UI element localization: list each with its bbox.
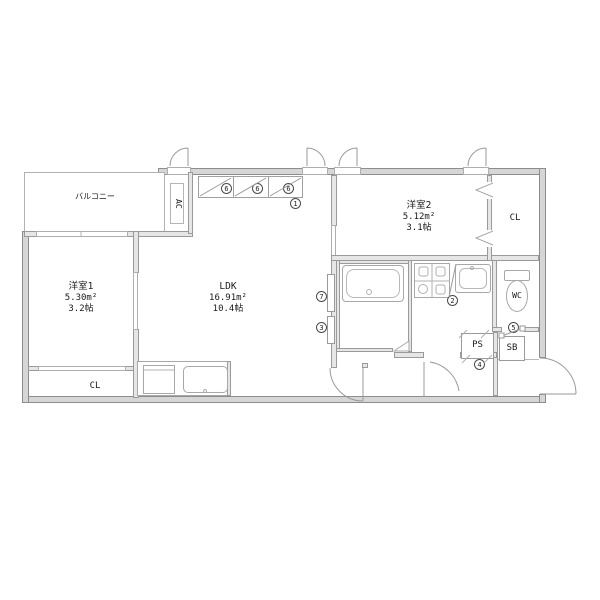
vanity-faucet bbox=[471, 267, 474, 270]
cl2-folding-door bbox=[476, 231, 493, 245]
washroom-divider-line bbox=[449, 264, 456, 297]
storage-hatch-line bbox=[270, 178, 301, 196]
door-swing-top-2 bbox=[307, 148, 325, 166]
bathtub-drain bbox=[367, 290, 372, 295]
entrance-door-swing bbox=[540, 358, 576, 394]
washer-pan-detail bbox=[436, 285, 445, 294]
cl2-folding-door bbox=[476, 183, 493, 197]
bath-folding-door bbox=[394, 341, 409, 351]
door-swing-ldk-hall bbox=[330, 368, 363, 401]
kitchen-faucet bbox=[204, 390, 207, 393]
door-swing-top-3 bbox=[339, 148, 357, 166]
washer-pan-detail bbox=[436, 267, 445, 276]
storage-hatch-line bbox=[200, 178, 231, 196]
wc-door-end bbox=[499, 333, 504, 338]
wc-door-end bbox=[520, 326, 525, 331]
storage-hatch-line bbox=[235, 178, 266, 196]
door-swing-top-1 bbox=[170, 148, 188, 166]
door-swing-washroom bbox=[424, 362, 459, 397]
plan-line-overlay bbox=[0, 0, 600, 600]
door-swing-top-4 bbox=[468, 148, 486, 166]
ps-hatch-ticks bbox=[459, 330, 492, 363]
washer-pan-detail bbox=[419, 267, 428, 276]
floor-plan-canvas: バルコニー AC WC PS SB bbox=[0, 0, 600, 600]
washer-drain bbox=[419, 285, 428, 294]
